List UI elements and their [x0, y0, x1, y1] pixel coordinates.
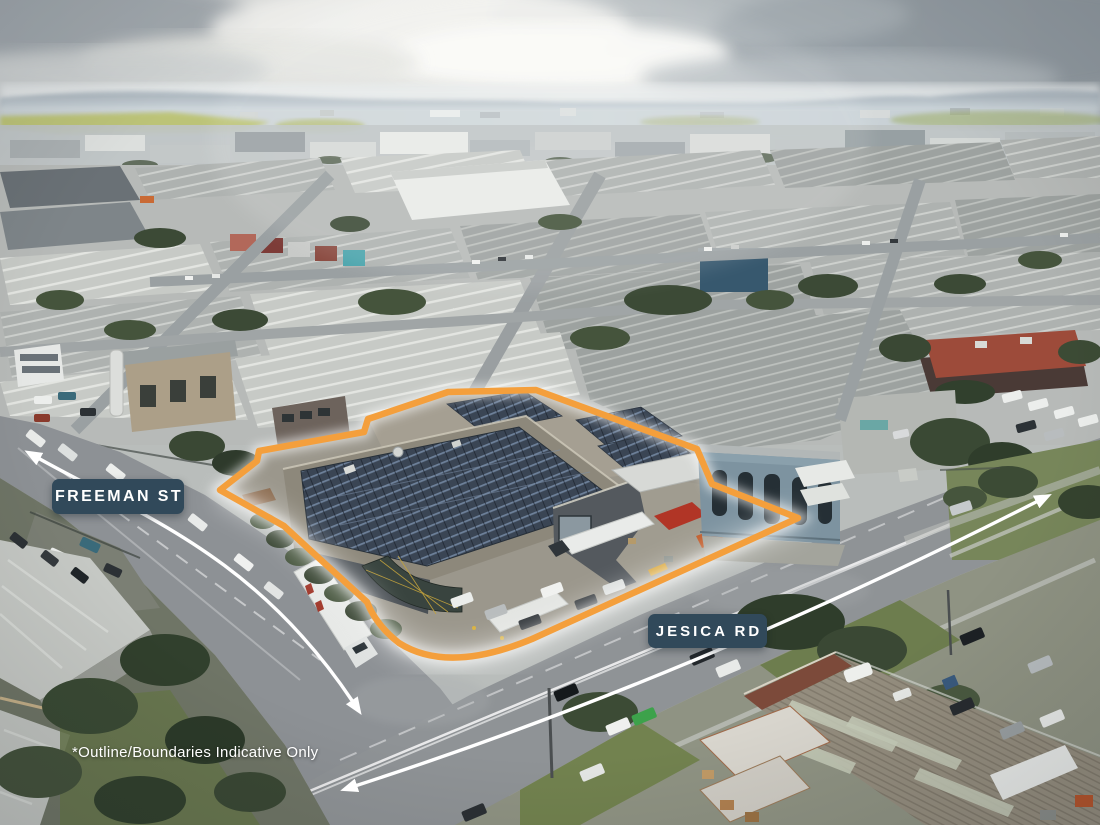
boundary-disclaimer: *Outline/Boundaries Indicative Only: [72, 744, 318, 761]
street-label-freeman-st: FREEMAN ST: [52, 479, 184, 514]
street-label-jesica-rd: JESICA RD: [648, 614, 767, 648]
annotation-overlay: [0, 0, 1100, 825]
aerial-photo: FREEMAN ST JESICA RD *Outline/Boundaries…: [0, 0, 1100, 825]
